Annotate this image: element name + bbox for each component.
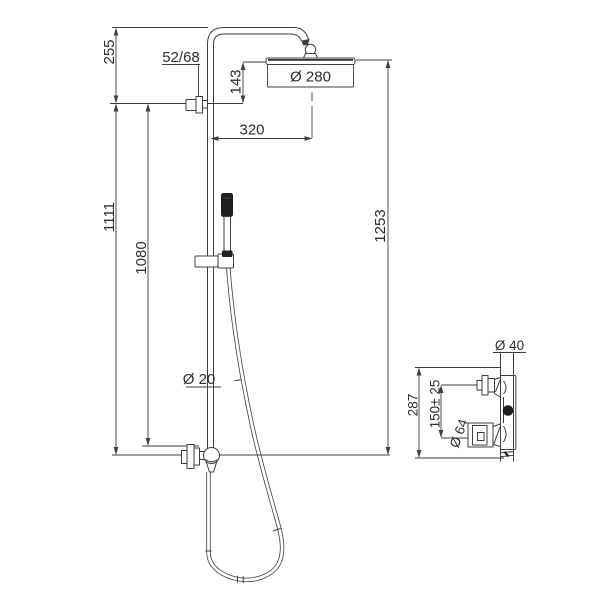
dim-287-label: 287 xyxy=(406,394,421,417)
dim-143-label: 143 xyxy=(228,69,245,94)
dim-1253-label: 1253 xyxy=(372,209,389,242)
technical-drawing-canvas: 255 1111 1080 1253 143 52/68 Ø 280 320 Ø… xyxy=(0,0,600,600)
dimension-labels: 255 1111 1080 1253 143 52/68 Ø 280 320 Ø… xyxy=(101,39,524,449)
lower-wall-elbow xyxy=(182,445,220,473)
shower-column xyxy=(182,28,356,473)
dim-150-25-label: 150± 25 xyxy=(428,380,443,429)
valve-knob-dot xyxy=(503,406,513,416)
shower-hose xyxy=(205,257,282,583)
dim-d280-label: Ø 280 xyxy=(290,69,331,86)
dim-1111-label: 1111 xyxy=(101,202,118,232)
dim-d20-label: Ø 20 xyxy=(183,371,216,388)
dim-52-68-label: 52/68 xyxy=(162,49,200,66)
hand-shower xyxy=(222,194,233,257)
overhead-shower-head xyxy=(266,58,355,65)
valve-upper-inlet xyxy=(477,376,501,398)
upper-wall-bracket xyxy=(186,97,208,114)
valve-lower-inlet xyxy=(468,423,501,447)
dim-d40-label: Ø 40 xyxy=(495,338,524,353)
shower-system-diagram: 255 1111 1080 1253 143 52/68 Ø 280 320 Ø… xyxy=(0,0,600,600)
dim-d64-label: Ø 64 xyxy=(447,417,471,450)
riser-pipe xyxy=(208,28,309,453)
main-dimension-lines xyxy=(110,28,392,456)
dim-320-label: 320 xyxy=(239,122,264,139)
dim-255-label: 255 xyxy=(101,39,118,64)
dim-1080-label: 1080 xyxy=(133,241,150,274)
swivel-joint xyxy=(302,40,318,59)
